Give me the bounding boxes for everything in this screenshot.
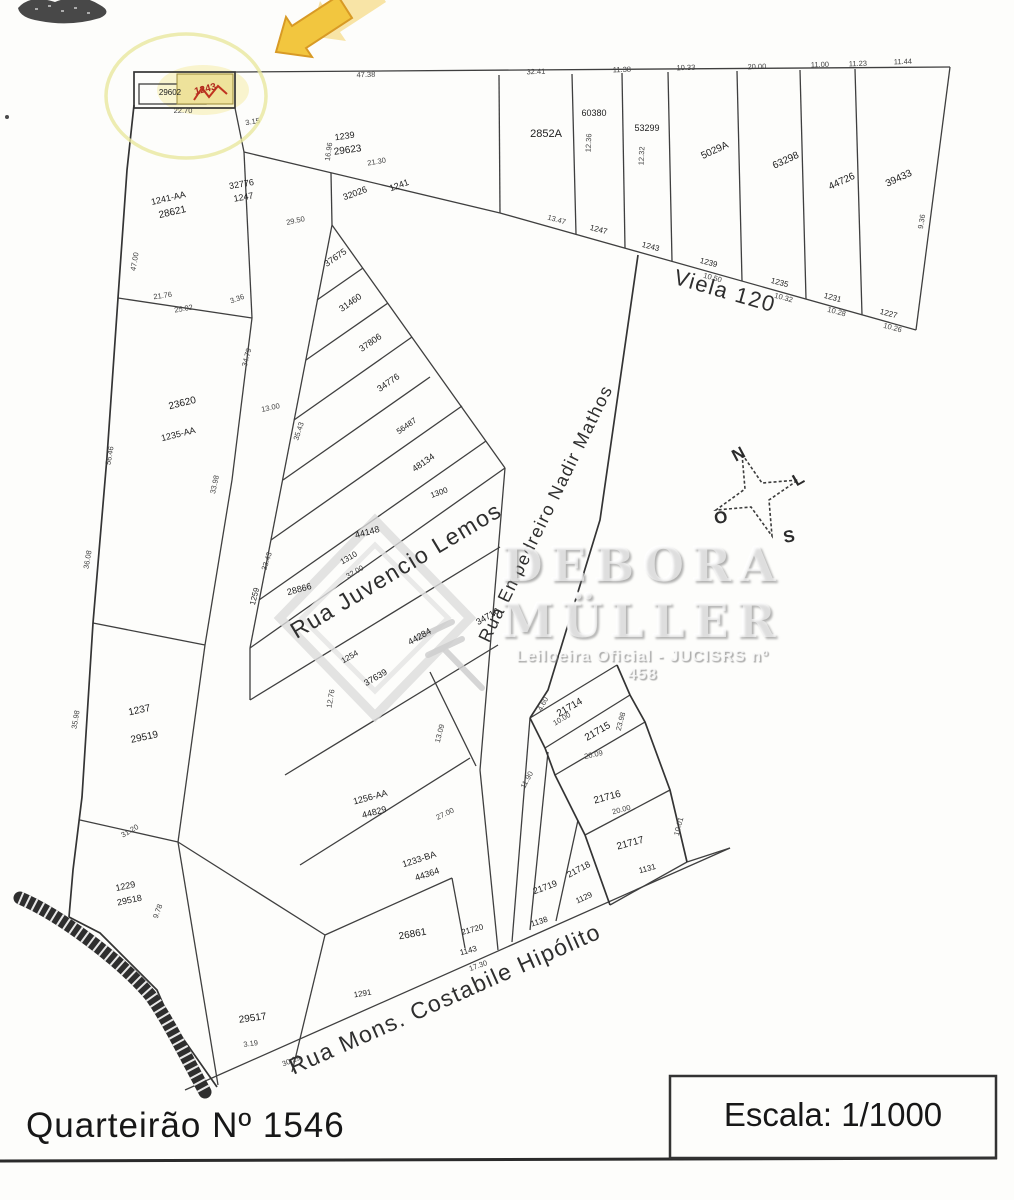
parcel-boundary-line: [499, 75, 500, 213]
parcel-boundary-line: [687, 848, 730, 862]
lot-number-label: 26861: [398, 927, 428, 943]
parcel-boundary-line: [430, 672, 476, 766]
parcel-boundary-line: [480, 770, 498, 950]
measurement-label: 10.26: [882, 321, 902, 335]
parcel-boundary-line: [737, 71, 742, 281]
measurement-label: 27.00: [435, 806, 456, 822]
lot-number-label: 1239: [334, 130, 355, 143]
lot-number-label: 1243: [641, 240, 661, 253]
lot-number-label: 63298: [771, 150, 801, 172]
lot-number-label: 44726: [827, 171, 857, 193]
measurement-label: 3.19: [243, 1038, 259, 1049]
lot-number-label: 37806: [357, 331, 383, 354]
lot-number-label: 1233-BA: [401, 849, 437, 869]
parcel-boundary-line: [235, 67, 950, 72]
measurement-label: 11.44: [894, 57, 913, 67]
lot-number-label: 1231: [823, 291, 843, 304]
lot-number-label: 29623: [333, 143, 363, 158]
lot-number-label: 29519: [130, 729, 160, 746]
measurement-label: 35.98: [69, 710, 81, 730]
lot-number-label: 1237: [127, 703, 151, 718]
compass-letter: L: [789, 468, 807, 490]
lot-number-label: 21716: [592, 789, 622, 807]
lot-number-label: 37639: [362, 667, 389, 688]
measurement-label: 13.09: [433, 723, 447, 743]
compass-letter: O: [712, 507, 729, 528]
measurement-label: 10.28: [826, 305, 846, 319]
lot-number-label: 1143: [459, 944, 478, 957]
parcel-boundary-line: [325, 878, 452, 935]
parcel-boundary-line: [178, 645, 205, 842]
lot-number-label: 44148: [354, 524, 381, 540]
lot-number-label: 44364: [414, 866, 441, 883]
measurement-label: 9.78: [151, 903, 164, 920]
lot-number-label: 29518: [116, 893, 143, 908]
parcel-boundary-line: [512, 718, 530, 942]
parcel-boundary-line: [93, 623, 205, 645]
measurement-label: 31.20: [119, 822, 140, 839]
measurement-label: 12.36: [584, 133, 594, 152]
street-name-label: Rua Mons. Costabile Hipólito: [285, 918, 605, 1079]
lot-number-label: 1138: [530, 915, 550, 929]
measurement-label: 36.08: [81, 550, 93, 570]
measurement-label: 12.76: [324, 689, 336, 709]
measurement-label: 47.38: [356, 70, 375, 80]
measurement-label: 21.30: [367, 155, 387, 167]
parcel-boundary-line: [855, 69, 862, 315]
map-labels: 296021239296233277612471241-AA2862132026…: [69, 57, 927, 1080]
block-boundary-line: [530, 255, 638, 718]
scale-label: Escala: 1/1000: [670, 1096, 996, 1134]
lot-number-label: 21717: [615, 835, 645, 853]
lot-number-label: 1227: [879, 307, 899, 320]
lot-number-label: 31460: [337, 291, 363, 314]
lot-number-label: 1291: [353, 987, 373, 999]
parcel-boundary-line: [572, 74, 576, 234]
lot-number-label: 56487: [395, 416, 419, 436]
measurement-label: 4.60: [535, 695, 550, 712]
parcel-boundary-line: [250, 225, 332, 648]
hatched-band-texture: [20, 898, 205, 1092]
measurement-label: 25.02: [174, 302, 194, 314]
measurement-label: 20.00: [611, 803, 631, 817]
measurement-label: 34.79: [240, 347, 254, 367]
parcel-boundary-line: [622, 73, 625, 248]
lot-number-label: 1247: [589, 223, 609, 236]
lot-number-label: 53299: [634, 123, 659, 133]
parcel-boundary-line: [452, 878, 465, 948]
block-boundary-line: [69, 105, 134, 917]
measurement-label: 10.01: [672, 816, 686, 836]
lot-number-label: 29517: [238, 1011, 268, 1026]
lot-number-label: 32776: [228, 177, 254, 191]
measurement-label: 11.23: [849, 59, 868, 69]
lot-number-label: 1300: [429, 485, 449, 500]
measurement-label: 10.33: [676, 63, 695, 73]
measurement-label: 11.90: [519, 770, 535, 790]
lot-number-label: 37675: [322, 246, 348, 269]
measurement-label: 20.00: [747, 62, 766, 72]
measurement-label: 32.41: [526, 67, 545, 77]
lot-number-label: 2852A: [530, 128, 562, 140]
parcel-boundary-line: [800, 70, 806, 299]
lot-number-label: 1131: [638, 862, 657, 875]
measurement-label: 3.36: [229, 292, 246, 305]
lot-number-label: 1239: [699, 256, 719, 269]
measurement-label: 10.00: [551, 710, 572, 727]
lot-number-label: 21720: [460, 922, 484, 937]
hatched-band: [20, 898, 205, 1092]
cadastral-map: NLOS 296021239296233277612471241-AA28621…: [0, 0, 1014, 1200]
scanned-map-sheet: NLOS 296021239296233277612471241-AA28621…: [0, 0, 1014, 1200]
parcel-boundary-line: [916, 67, 950, 330]
lot-number-label: 29602: [159, 88, 182, 97]
measurement-label: 13.00: [260, 401, 280, 414]
measurement-label: 22.70: [174, 106, 193, 115]
street-name-label: Viela 120: [671, 264, 779, 317]
measurement-label: 9.36: [916, 214, 927, 230]
measurement-label: 11.00: [811, 60, 830, 70]
lot-number-label: 21715: [583, 720, 613, 744]
lot-number-label: 1129: [574, 890, 594, 906]
lot-number-label: 34776: [375, 371, 401, 394]
lot-number-label: 5029A: [700, 140, 731, 162]
lot-number-label: 60380: [581, 108, 606, 118]
measurement-label: 20.09: [583, 748, 603, 761]
compass-letter: S: [782, 526, 796, 547]
lot-number-label: 1229: [115, 879, 137, 893]
measurement-label: 33.98: [208, 474, 221, 494]
measurement-label: 11.38: [613, 65, 632, 75]
parcel-boundary-line: [331, 173, 332, 225]
measurement-label: 21.76: [153, 290, 173, 302]
lot-number-label: 23620: [168, 395, 198, 413]
lot-number-label: 39433: [884, 168, 914, 190]
measurement-label: 16.96: [323, 142, 335, 162]
measurement-label: 23.98: [614, 711, 628, 731]
lot-number-label: 1235: [770, 276, 790, 289]
measurement-label: 29.50: [285, 214, 305, 227]
parcel-boundary-line: [232, 318, 252, 480]
parcel-boundary-line: [178, 842, 325, 935]
lot-number-label: 28621: [158, 204, 188, 221]
parcel-boundary-line: [185, 848, 730, 1090]
street-name-label: Rua Juvencio Lemos: [286, 497, 507, 644]
measurement-label: 12.32: [637, 146, 647, 165]
parcel-boundary-line: [530, 752, 548, 930]
lot-number-label: 48134: [410, 451, 436, 474]
parcel-boundary-line: [668, 72, 672, 261]
measurement-label: 56.46: [103, 446, 115, 466]
lot-number-label: 1235-AA: [160, 425, 196, 443]
lot-number-label: 32026: [342, 184, 369, 202]
measurement-label: 33.43: [259, 551, 273, 572]
block-number-label: Quarteirão Nº 1546: [26, 1106, 345, 1146]
measurement-label: 13.47: [546, 213, 567, 227]
lot-number-label: 1247: [233, 190, 254, 203]
parcel-boundary-line: [205, 480, 232, 645]
stray-mark: [5, 115, 9, 119]
measurement-label: 47.00: [128, 252, 140, 272]
parcel-boundary-line: [285, 645, 498, 775]
